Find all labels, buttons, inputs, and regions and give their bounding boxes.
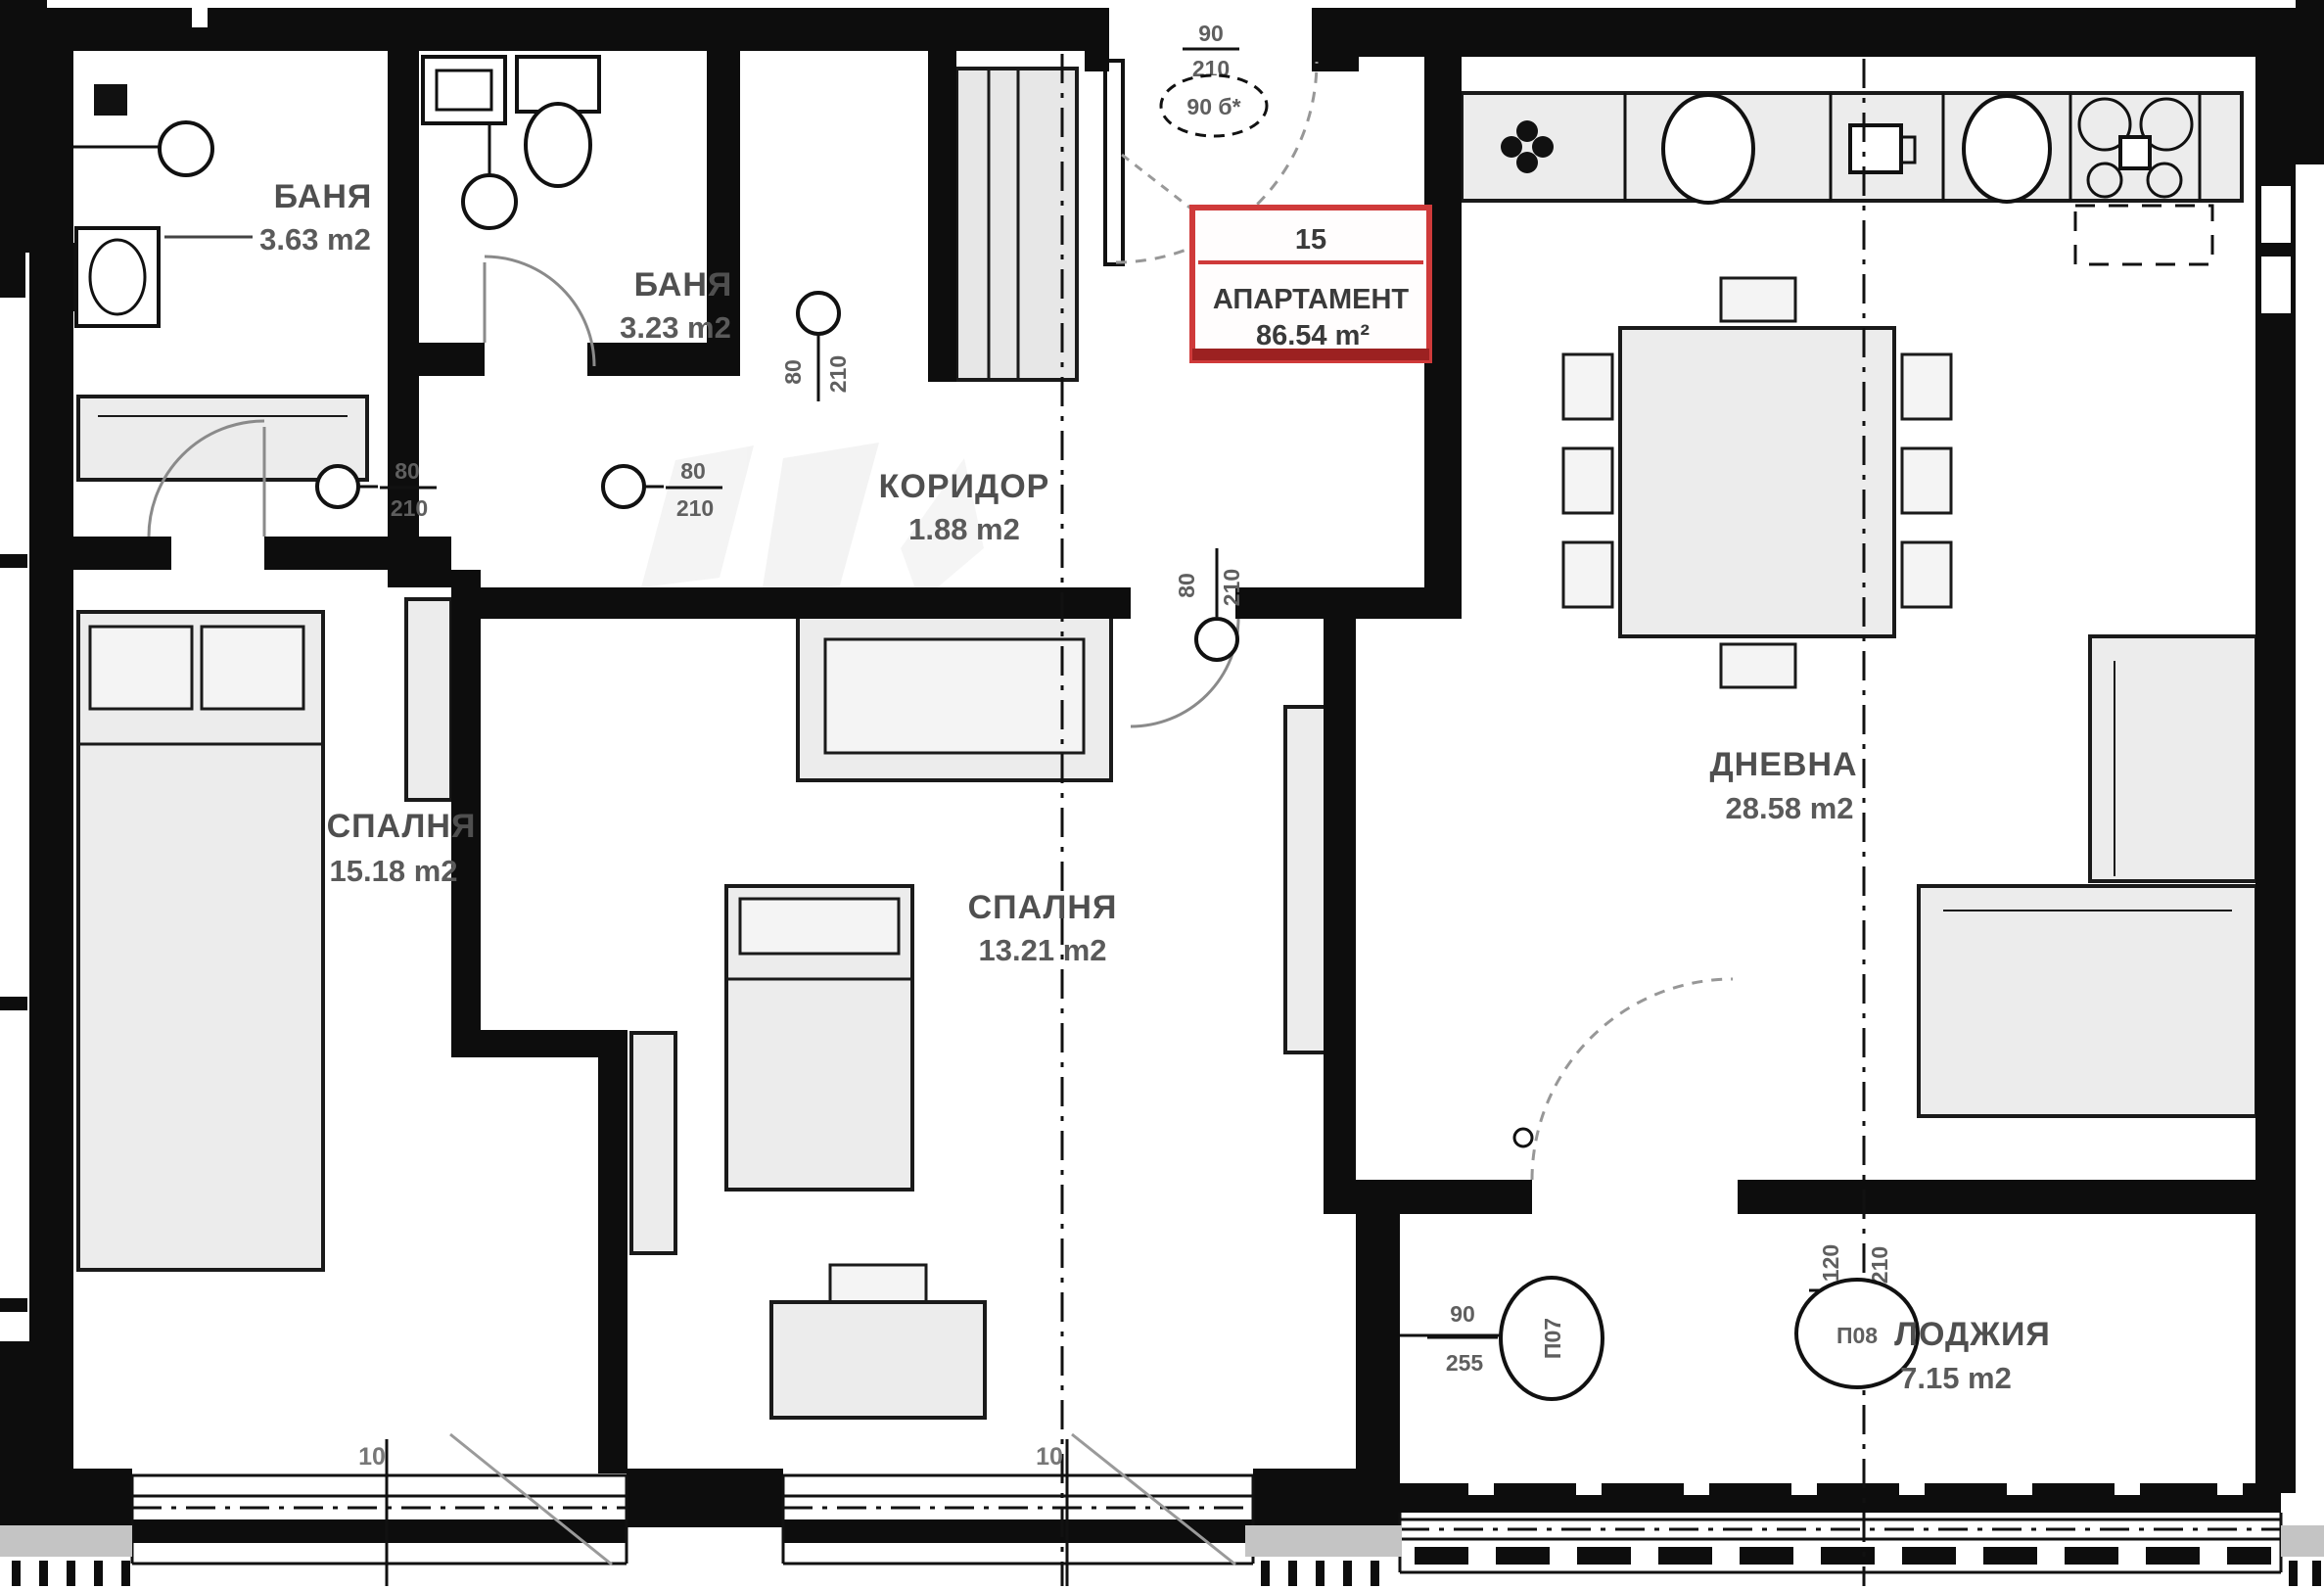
apartment-area: 86.54 m²: [1256, 320, 1370, 351]
dining-table-set: [1563, 278, 1951, 687]
sofa: [1919, 636, 2256, 1116]
shower-head-icon: [160, 122, 212, 175]
room-name-bedroom1: СПАЛНЯ: [327, 808, 477, 845]
floor-plan-page: 80 210 80 210 80 210 80 210 90 210 90 б*…: [0, 0, 2324, 1589]
door-height: 210: [676, 495, 714, 521]
door-height: 210: [1219, 569, 1244, 606]
chair: [1902, 354, 1951, 419]
room-area-living: 28.58 m2: [1726, 791, 1854, 825]
room-name-loggia: ЛОДЖИЯ: [1894, 1316, 2051, 1353]
room-area-bedroom2: 13.21 m2: [979, 933, 1107, 967]
loggia-door-swing: [1532, 979, 1733, 1180]
apartment-number: 15: [1295, 224, 1326, 256]
toilet2-bowl: [526, 104, 590, 186]
dining-table: [1620, 328, 1894, 636]
ceiling-lamp-icon: [463, 175, 516, 228]
bedroom1-furniture: [78, 599, 451, 1270]
shower-handle: [94, 84, 127, 116]
chair: [1563, 354, 1612, 419]
kitchen-counter: [1462, 93, 2242, 264]
wardrobe: [406, 599, 451, 800]
door-callout-bath2: 80 210: [780, 293, 851, 401]
door-marker-icon: [603, 466, 644, 507]
loggia-door-height: 255: [1446, 1350, 1484, 1376]
entrance-width: 90: [1198, 21, 1224, 46]
entrance-callout: 90 210 90 б*: [1161, 21, 1267, 136]
window2-dimension: 10: [1036, 1443, 1063, 1471]
chair: [1721, 644, 1795, 687]
door-width: 80: [780, 359, 806, 385]
room-name-corridor: КОРИДОР: [879, 468, 1050, 505]
loggia-door-callout: 90 255 П07: [1400, 1278, 1603, 1399]
door-marker-icon: [798, 293, 839, 334]
bed: [78, 612, 323, 1270]
room-name-bedroom2: СПАЛНЯ: [968, 889, 1118, 926]
room-area-bath1: 3.63 m2: [259, 222, 371, 257]
room-area-loggia: 7.15 m2: [1900, 1361, 2012, 1395]
door-callout-bedroom2: 80 210: [1174, 548, 1244, 660]
chair: [1902, 448, 1951, 513]
door-marker-icon: [317, 466, 358, 507]
room-area-bath2: 3.23 m2: [620, 310, 731, 345]
door-height: 210: [825, 355, 851, 393]
bath1-fixtures: [45, 84, 367, 480]
apartment-name: АПАРТАМЕНТ: [1213, 284, 1410, 315]
bath2-door-swing: [485, 257, 594, 366]
entrance-door-leaf: [1105, 61, 1123, 264]
loggia-door-width: 90: [1450, 1301, 1475, 1327]
pillow: [740, 899, 899, 954]
loggia-window-height: 210: [1867, 1246, 1892, 1284]
door-width: 80: [680, 458, 706, 484]
loggia-window-width: 120: [1818, 1244, 1843, 1282]
pillow: [202, 627, 303, 709]
room-area-corridor: 1.88 m2: [908, 512, 1020, 546]
chair: [1563, 542, 1612, 607]
room-area-bedroom1: 15.18 m2: [330, 854, 458, 888]
pillow: [90, 627, 192, 709]
bathtub: [78, 397, 367, 480]
bath2-fixtures: [423, 57, 599, 228]
door-marker-icon: [1196, 619, 1237, 660]
loggia-door-mark: П07: [1540, 1318, 1565, 1359]
room-name-living: ДНЕВНА: [1709, 746, 1857, 783]
chair: [1902, 542, 1951, 607]
kitchen-sink-icon: [1663, 95, 1753, 203]
desk-top: [830, 1265, 926, 1304]
desk: [771, 1302, 985, 1418]
room-name-bath1: БАНЯ: [274, 178, 373, 215]
bedroom2-furniture: [631, 612, 1331, 1418]
floor-plan-drawing: 80 210 80 210 80 210 80 210 90 210 90 б*…: [0, 0, 2324, 1589]
wardrobe: [631, 1033, 675, 1253]
appliance-icon: [1850, 125, 1901, 172]
basin-icon: [1964, 96, 2050, 202]
chair: [1721, 278, 1795, 321]
room-name-bath2: БАНЯ: [634, 266, 733, 304]
door-width: 80: [395, 458, 420, 484]
entry-closet: [956, 69, 1077, 380]
loggia-glazing: [1400, 1513, 2281, 1572]
bedroom2-window: [783, 1434, 1253, 1565]
door-height: 210: [391, 495, 428, 521]
under-counter-appliance: [2075, 206, 2212, 264]
door-width: 80: [1174, 573, 1199, 598]
entrance-mark: 90 б*: [1186, 94, 1240, 119]
chair: [1563, 448, 1612, 513]
loggia-window-mark: П08: [1836, 1323, 1878, 1348]
window1-dimension: 10: [358, 1443, 386, 1471]
